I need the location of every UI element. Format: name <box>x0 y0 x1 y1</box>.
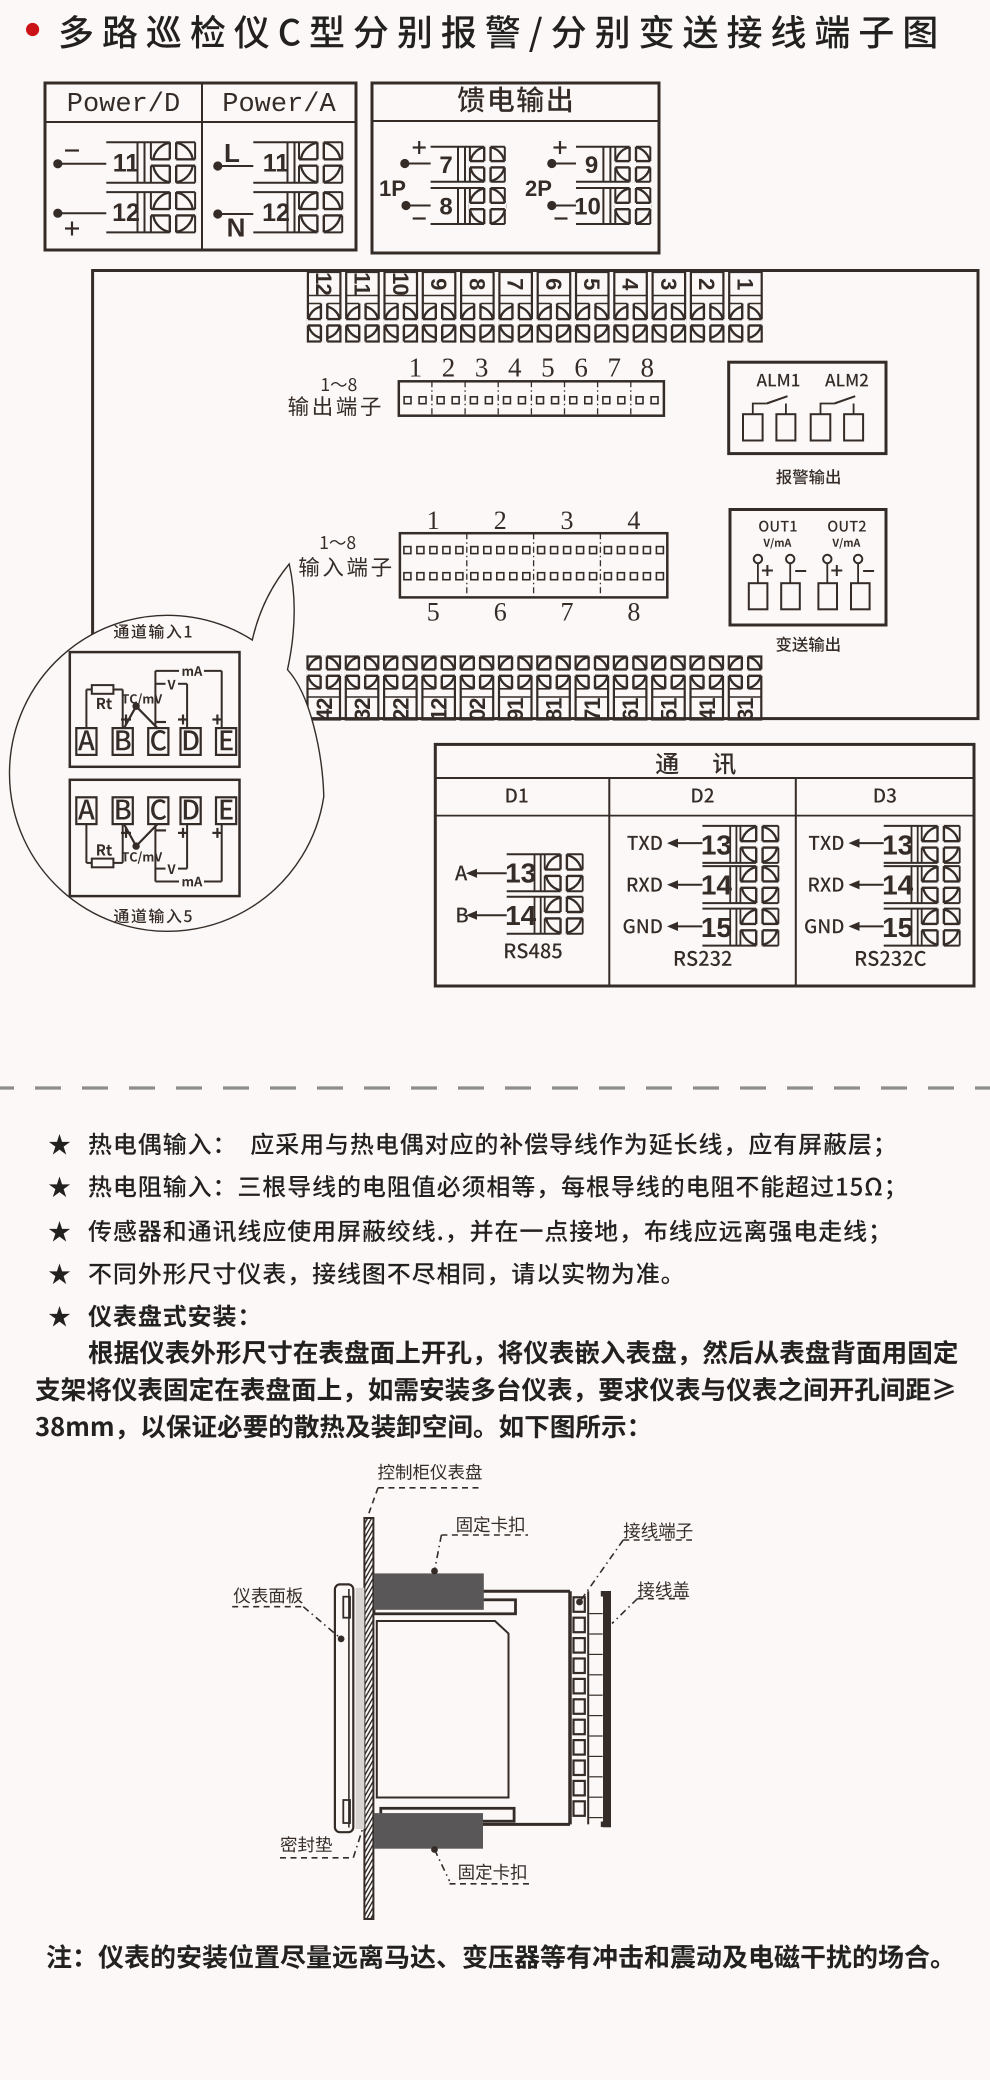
svg-text:6: 6 <box>618 709 643 721</box>
svg-text:1: 1 <box>657 697 682 709</box>
svg-text:3: 3 <box>656 278 681 290</box>
svg-text:8: 8 <box>627 598 640 627</box>
svg-text:8: 8 <box>542 709 567 721</box>
svg-text:8: 8 <box>439 194 452 221</box>
svg-text:4: 4 <box>627 506 640 535</box>
svg-text:14: 14 <box>701 870 733 901</box>
svg-text:2: 2 <box>694 278 719 290</box>
svg-text:12: 12 <box>112 199 140 227</box>
svg-text:11: 11 <box>263 150 290 178</box>
svg-text:2: 2 <box>388 709 413 721</box>
svg-text:1: 1 <box>427 709 452 721</box>
svg-text:3: 3 <box>350 709 375 721</box>
svg-text:1: 1 <box>409 353 423 383</box>
svg-text:2: 2 <box>465 697 490 709</box>
svg-text:2: 2 <box>427 697 452 709</box>
svg-text:1: 1 <box>695 697 720 709</box>
svg-text:14: 14 <box>882 870 914 901</box>
svg-text:13: 13 <box>882 829 913 860</box>
svg-text:9: 9 <box>503 709 528 721</box>
svg-text:10: 10 <box>574 194 601 221</box>
svg-text:11: 11 <box>113 150 140 178</box>
svg-text:13: 13 <box>505 858 536 889</box>
svg-text:7: 7 <box>561 598 574 627</box>
svg-text:1: 1 <box>618 697 643 709</box>
svg-text:1: 1 <box>311 272 336 284</box>
svg-text:8: 8 <box>641 353 655 383</box>
svg-text:1: 1 <box>427 506 440 535</box>
svg-text:2: 2 <box>494 506 507 535</box>
svg-text:9: 9 <box>585 152 598 179</box>
svg-text:8: 8 <box>464 278 489 290</box>
svg-text:2: 2 <box>311 283 336 295</box>
svg-text:4: 4 <box>695 708 720 721</box>
svg-text:2: 2 <box>312 697 337 709</box>
svg-text:13: 13 <box>701 829 732 860</box>
svg-text:5: 5 <box>541 353 555 383</box>
svg-text:7: 7 <box>607 353 621 383</box>
svg-text:3: 3 <box>475 353 489 383</box>
svg-text:5: 5 <box>657 709 682 721</box>
svg-text:3: 3 <box>561 506 574 535</box>
svg-text:12: 12 <box>262 199 290 227</box>
svg-text:1: 1 <box>349 283 374 295</box>
svg-text:5: 5 <box>427 598 440 627</box>
svg-text:1: 1 <box>580 697 605 709</box>
svg-text:1: 1 <box>388 272 413 284</box>
svg-text:6: 6 <box>494 598 507 627</box>
svg-text:1: 1 <box>733 697 758 709</box>
svg-text:1: 1 <box>349 272 374 284</box>
svg-text:1: 1 <box>503 697 528 709</box>
svg-text:5: 5 <box>579 278 604 290</box>
svg-text:1: 1 <box>542 697 567 709</box>
svg-text:6: 6 <box>541 278 566 290</box>
svg-text:4: 4 <box>508 353 522 383</box>
svg-text:N: N <box>227 213 246 243</box>
svg-text:0: 0 <box>465 709 490 721</box>
svg-text:6: 6 <box>574 353 588 383</box>
svg-text:7: 7 <box>439 152 452 179</box>
svg-text:14: 14 <box>505 900 537 931</box>
svg-text:2: 2 <box>442 353 456 383</box>
svg-text:2: 2 <box>388 697 413 709</box>
svg-text:7: 7 <box>580 709 605 721</box>
svg-text:Power/A: Power/A <box>222 90 336 120</box>
svg-text:3: 3 <box>733 709 758 721</box>
svg-text:0: 0 <box>388 283 413 295</box>
svg-text:4: 4 <box>618 278 643 291</box>
svg-text:7: 7 <box>503 278 528 290</box>
svg-text:L: L <box>224 138 240 168</box>
svg-text:2P: 2P <box>525 176 552 201</box>
svg-text:15: 15 <box>701 912 732 943</box>
svg-text:Power/D: Power/D <box>67 90 180 120</box>
svg-text:4: 4 <box>312 708 337 721</box>
svg-text:1: 1 <box>732 278 757 290</box>
svg-text:1P: 1P <box>379 176 406 201</box>
svg-text:2: 2 <box>350 697 375 709</box>
svg-text:15: 15 <box>882 912 913 943</box>
svg-text:9: 9 <box>426 278 451 290</box>
